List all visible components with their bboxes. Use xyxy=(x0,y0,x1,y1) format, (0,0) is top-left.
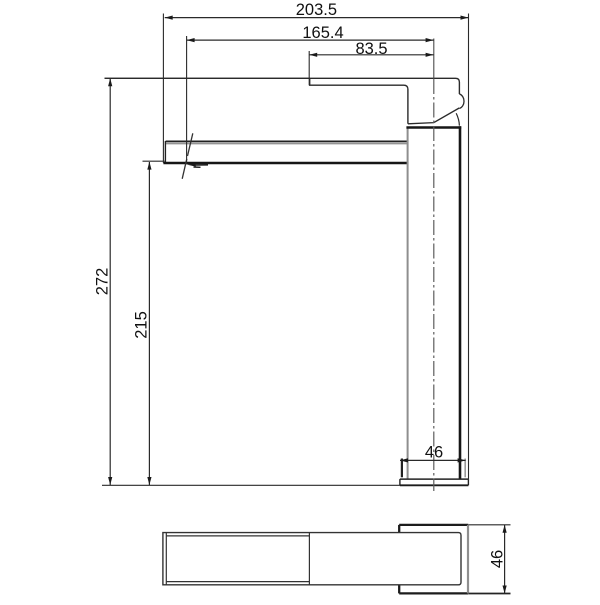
svg-text:203.5: 203.5 xyxy=(296,1,337,19)
svg-text:215: 215 xyxy=(132,311,150,339)
svg-text:46: 46 xyxy=(488,550,506,568)
svg-text:83.5: 83.5 xyxy=(355,40,387,58)
svg-text:272: 272 xyxy=(93,268,111,296)
svg-text:165.4: 165.4 xyxy=(302,24,343,42)
svg-text:46: 46 xyxy=(425,444,443,462)
